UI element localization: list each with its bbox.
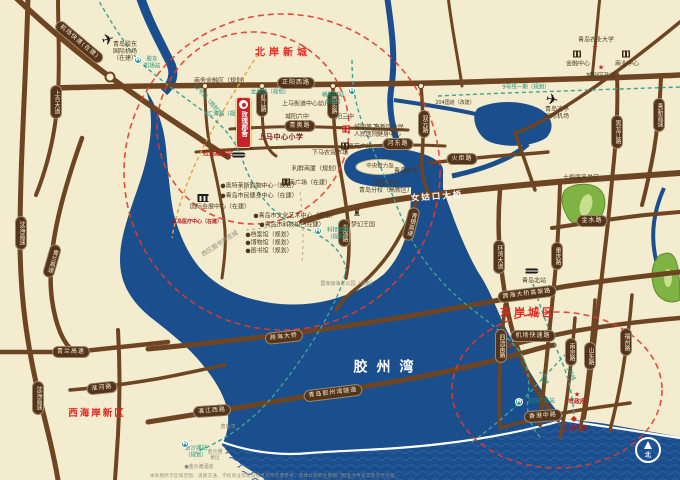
poi-label: ●档案馆（规划）	[245, 231, 292, 238]
road-pill: 双元路	[418, 110, 430, 138]
poi-label: 青岛中学	[394, 167, 418, 174]
metro-label: 五四广场站	[527, 399, 555, 406]
poi-label: 嘉苑广场	[348, 143, 372, 150]
metro-label: 胶东 机场站	[144, 56, 161, 69]
metro-label: 9号线一期（规划）	[502, 85, 550, 92]
road-pill: 山东路	[584, 342, 596, 370]
poi-label: ●青岛市文化艺术中心（规划）	[253, 212, 336, 219]
road-pill: 正阳西路	[277, 77, 315, 89]
metro-label: 龙海路（规划）	[251, 90, 290, 97]
bridge-label: 女姑口大桥	[410, 188, 463, 204]
road-pill: 青新高速	[653, 98, 665, 132]
road-pill: 青兰高速	[52, 346, 90, 358]
road-pill: 重庆路	[551, 242, 563, 270]
road-pill: 青奥路	[284, 120, 315, 132]
museum-icon	[198, 194, 209, 202]
poi-label-may-fourth-square: 五四广场	[563, 425, 587, 432]
bldg-icon	[341, 143, 349, 150]
road-pill: 青兰高速	[42, 243, 63, 279]
metro-label: 科技馆站 （规划）	[327, 227, 349, 240]
road-pill: 南京路	[565, 338, 577, 366]
poi-label: 国际会展中心（在建）	[190, 203, 250, 210]
poi-label: 利群商厦（规划）	[292, 165, 340, 172]
road-pill: 福州路	[620, 328, 632, 356]
metro-icon	[348, 87, 356, 95]
road-pill: 沈海高速	[32, 381, 44, 415]
cross-icon	[343, 126, 350, 133]
road-pill: 四流南路	[495, 329, 507, 363]
poi-label-hongdao-station: 红岛高铁站	[203, 150, 233, 157]
map-labels-layer: 北岸新城东岸城区西海岸新区胶州湾正阳西路青奥路河东路火炬路金水路跨海大桥高架路机…	[0, 0, 680, 480]
star-icon	[592, 45, 598, 52]
metro-label: 朝阳村站 （规划）	[322, 92, 344, 105]
road-pill: 跨海大桥	[264, 329, 303, 345]
compass-north-arrow	[644, 441, 652, 449]
metro-label: 3号线	[564, 366, 576, 382]
metro-icon	[134, 56, 142, 64]
castle-icon	[353, 209, 362, 219]
road-pill: 青银高速	[401, 206, 421, 242]
poi-label: 中央智力岛	[366, 164, 394, 171]
road-pill: 黑龙江路	[611, 115, 623, 149]
location-map: 北岸新城东岸城区西海岸新区胶州湾正阳西路青奥路河东路火炬路金水路跨海大桥高架路机…	[0, 0, 680, 480]
poi-label: 高新区全民 健身中心	[374, 124, 404, 138]
poi-label: 商务金融区（规划）	[194, 77, 248, 84]
poi-label: 下马农贸市场	[312, 149, 348, 156]
poi-label: 城阳三中	[330, 113, 354, 120]
poi-label: ●图书馆（规划）	[245, 247, 292, 254]
compass-icon: 北	[635, 437, 661, 463]
poi-label: 金融中心	[566, 60, 590, 67]
poi-label: 商业中心	[615, 60, 639, 67]
plane-icon	[545, 92, 560, 109]
train-icon	[233, 153, 246, 158]
region-label-north-shore: 北岸新城	[255, 48, 311, 59]
poi-label: 西区图书博览城	[200, 230, 239, 259]
poi-label: 红岛医疗中心（在建）	[172, 219, 222, 225]
poi-label: ●青岛市民健身中心（在建）	[220, 192, 297, 199]
poi-label: 市政府	[568, 398, 586, 405]
bldg-icon	[282, 179, 290, 186]
metro-icon	[314, 227, 322, 235]
poi-label: 清华附中 青岛分校（高新区）	[359, 180, 413, 194]
project-logo-icon	[239, 100, 248, 109]
road-pill: 金水路	[576, 215, 607, 227]
diamond-icon	[571, 415, 577, 423]
poi-label: 204国道（改建）	[435, 100, 475, 106]
poi-label: 十梅庵风景区	[563, 174, 599, 181]
bldg-icon	[622, 51, 630, 58]
metro-label: 2号线	[537, 370, 549, 386]
compass-north-label: 北	[645, 450, 651, 459]
star-icon	[574, 392, 580, 399]
bldg-icon	[573, 51, 581, 58]
metro-icon	[515, 398, 523, 406]
poi-label-qingdao-north-station: 青岛北站	[522, 277, 546, 284]
disclaimer-text: 本地图所示区域范围、道路交通、学校商业等规划信息仅作示意参考，具体以政府主管部门…	[150, 473, 400, 479]
poi-label: 城阳六中	[285, 113, 309, 120]
project-marker: 玫瑰郡舍	[236, 97, 251, 148]
road-pill: 上合大道	[50, 85, 62, 119]
road-pill: 淮河路	[86, 380, 118, 395]
road-pill: 跨海大桥高架路	[497, 284, 557, 303]
road-pill: 环湾大道	[493, 240, 505, 274]
region-label-west-coast: 西海岸新区	[68, 409, 126, 419]
train-icon	[526, 269, 539, 274]
star-icon	[598, 65, 604, 72]
road-pill: 香港中路	[524, 409, 563, 424]
road-pill: 机场快速路	[510, 330, 555, 342]
project-name: 玫瑰郡舍	[240, 111, 247, 137]
poi-label: ●金沙滩酒店	[184, 464, 213, 470]
poi-label: 城阳区政府	[586, 72, 616, 79]
plane-icon	[100, 31, 116, 49]
poi-label: ●博物馆（规划）	[245, 239, 292, 246]
road-pill: 漓江西路	[193, 404, 232, 419]
region-label-east-shore: 东岸城区	[500, 307, 556, 319]
road-pill: 青岛胶州湾隧道	[303, 383, 363, 402]
poi-label: 唐岛湾	[220, 424, 235, 430]
poi-label: 国家级海洋公园（规划）	[320, 281, 375, 287]
poi-label-shangma-primary-school: 上马中心小学	[259, 133, 304, 141]
road-pill: 火炬路	[446, 153, 477, 165]
metro-icon	[181, 440, 189, 448]
metro-label: 金沙滩站 （规划）	[185, 445, 207, 458]
road-pill: 河东路	[382, 138, 413, 150]
road-pill: 机场快速(在建)	[53, 19, 106, 66]
road-pill: 沈海高速	[15, 216, 27, 250]
region-label-jiaozhou-bay: 胶州湾	[354, 360, 423, 375]
poi-label: 金沙滩 景区	[207, 449, 222, 461]
